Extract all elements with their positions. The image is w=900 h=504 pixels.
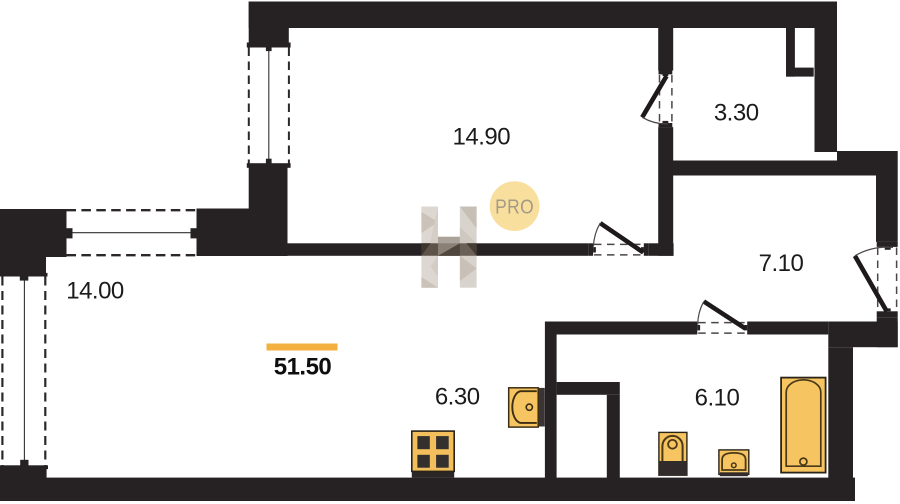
svg-text:3.30: 3.30: [714, 100, 759, 127]
svg-text:6.30: 6.30: [435, 383, 480, 410]
svg-text:7.10: 7.10: [759, 250, 804, 277]
svg-text:14.00: 14.00: [66, 278, 124, 305]
svg-text:6.10: 6.10: [695, 384, 740, 411]
svg-text:14.90: 14.90: [453, 123, 511, 150]
svg-text:51.50: 51.50: [274, 354, 332, 381]
svg-text:PRO: PRO: [495, 196, 534, 219]
